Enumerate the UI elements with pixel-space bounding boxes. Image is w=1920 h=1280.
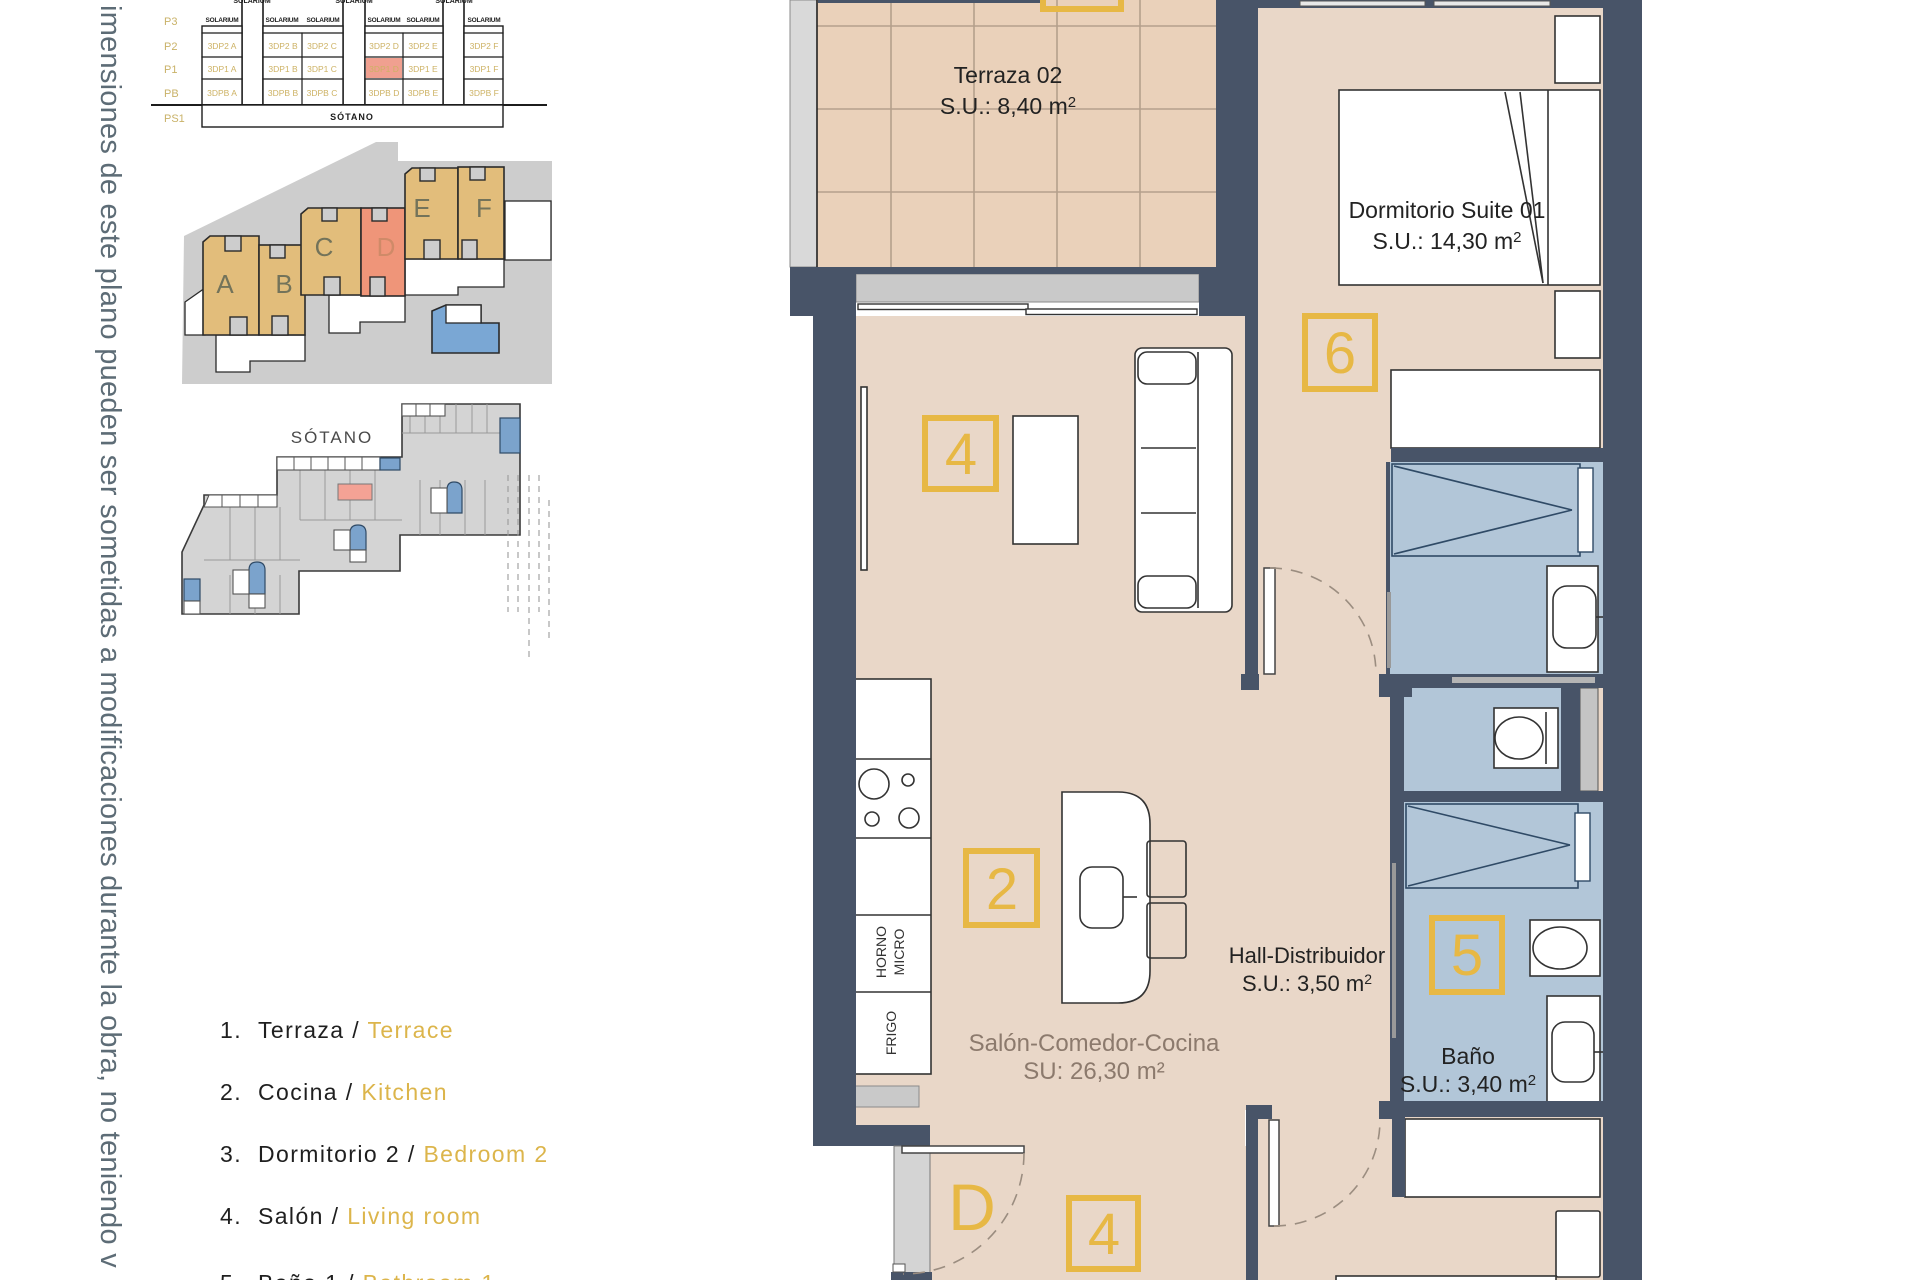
svg-text:SOLARIUM: SOLARIUM — [233, 0, 271, 5]
svg-text:HORNO: HORNO — [873, 926, 889, 978]
svg-text:3DP2 B: 3DP2 B — [268, 41, 298, 51]
svg-text:P2: P2 — [164, 41, 177, 53]
svg-text:3DPB E: 3DPB E — [408, 88, 439, 98]
svg-text:3DP2 D: 3DP2 D — [369, 41, 399, 51]
svg-text:SOLARIUM: SOLARIUM — [335, 0, 373, 5]
svg-text:4: 4 — [945, 422, 977, 487]
svg-text:4: 4 — [1088, 1202, 1120, 1267]
svg-text:Salón / Living room: Salón / Living room — [258, 1203, 482, 1229]
svg-text:FRIGO: FRIGO — [883, 1011, 899, 1055]
svg-text:SOLARIUM: SOLARIUM — [467, 17, 500, 24]
svg-text:SÓTANO: SÓTANO — [291, 428, 374, 447]
svg-text:Salón-Comedor-Cocina: Salón-Comedor-Cocina — [969, 1030, 1220, 1057]
svg-text:6: 6 — [1324, 321, 1356, 386]
svg-text:3DPB B: 3DPB B — [268, 88, 299, 98]
svg-text:S.U.: 3,40 m2: S.U.: 3,40 m2 — [1400, 1071, 1536, 1097]
svg-text:5.: 5. — [220, 1270, 242, 1280]
svg-text:S.U.: 3,50 m2: S.U.: 3,50 m2 — [1242, 971, 1372, 996]
svg-text:A: A — [216, 269, 234, 299]
svg-text:P1: P1 — [164, 64, 177, 76]
svg-text:Baño: Baño — [1441, 1043, 1495, 1069]
svg-text:Terraza / Terrace: Terraza / Terrace — [258, 1017, 454, 1043]
svg-text:P3: P3 — [164, 16, 177, 28]
svg-text:3DPB F: 3DPB F — [469, 88, 499, 98]
svg-text:S.U.: 8,40 m2: S.U.: 8,40 m2 — [940, 93, 1076, 119]
svg-text:3DP1 F: 3DP1 F — [470, 64, 499, 74]
svg-text:3DPB D: 3DPB D — [369, 88, 400, 98]
svg-text:3DP1 B: 3DP1 B — [268, 64, 298, 74]
svg-text:SOLARIUM: SOLARIUM — [435, 0, 473, 5]
svg-text:3.: 3. — [220, 1141, 242, 1167]
svg-text:Cocina / Kitchen: Cocina / Kitchen — [258, 1079, 448, 1105]
svg-text:3DPB A: 3DPB A — [207, 88, 237, 98]
svg-text:2.: 2. — [220, 1079, 242, 1105]
svg-text:SÓTANO: SÓTANO — [330, 111, 374, 122]
svg-text:Terraza 02: Terraza 02 — [954, 62, 1063, 88]
svg-text:3DP2 A: 3DP2 A — [208, 41, 237, 51]
svg-text:SOLARIUM: SOLARIUM — [265, 17, 298, 24]
svg-text:3DPB C: 3DPB C — [307, 88, 338, 98]
svg-text:3DP2 F: 3DP2 F — [470, 41, 499, 51]
svg-text:3DP1 C: 3DP1 C — [307, 64, 337, 74]
svg-text:3DP2 E: 3DP2 E — [408, 41, 438, 51]
svg-text:SOLARIUM: SOLARIUM — [306, 17, 339, 24]
svg-text:2: 2 — [986, 857, 1018, 922]
svg-text:1.: 1. — [220, 1017, 242, 1043]
svg-text:D: D — [948, 1170, 996, 1244]
svg-text:4.: 4. — [220, 1203, 242, 1229]
svg-text:C: C — [315, 232, 334, 262]
svg-text:imensiones de este plano puede: imensiones de este plano pueden ser some… — [94, 5, 126, 1268]
svg-text:MICRO: MICRO — [891, 929, 907, 976]
svg-text:B: B — [275, 269, 292, 299]
svg-text:SOLARIUM: SOLARIUM — [406, 17, 439, 24]
svg-text:S.U.: 14,30 m2: S.U.: 14,30 m2 — [1373, 228, 1522, 254]
svg-text:SU: 26,30 m²: SU: 26,30 m² — [1023, 1058, 1164, 1085]
svg-text:3DP2 C: 3DP2 C — [307, 41, 337, 51]
svg-text:Dormitorio 2 / Bedroom 2: Dormitorio 2 / Bedroom 2 — [258, 1141, 549, 1167]
svg-text:3DP1 E: 3DP1 E — [408, 64, 438, 74]
svg-text:F: F — [476, 193, 492, 223]
svg-text:PB: PB — [164, 88, 179, 100]
svg-text:SOLARIUM: SOLARIUM — [367, 17, 400, 24]
svg-text:Hall-Distribuidor: Hall-Distribuidor — [1229, 943, 1385, 968]
svg-text:D: D — [377, 232, 396, 262]
svg-text:5: 5 — [1451, 923, 1483, 988]
svg-text:Baño 1 / Bathroom 1: Baño 1 / Bathroom 1 — [258, 1270, 496, 1280]
svg-text:SOLARIUM: SOLARIUM — [205, 17, 238, 24]
svg-text:Dormitorio Suite 01: Dormitorio Suite 01 — [1349, 197, 1546, 223]
svg-text:E: E — [413, 193, 430, 223]
svg-text:3DP1 A: 3DP1 A — [208, 64, 237, 74]
svg-text:PS1: PS1 — [164, 113, 185, 125]
svg-text:3DP1 D: 3DP1 D — [369, 64, 399, 74]
